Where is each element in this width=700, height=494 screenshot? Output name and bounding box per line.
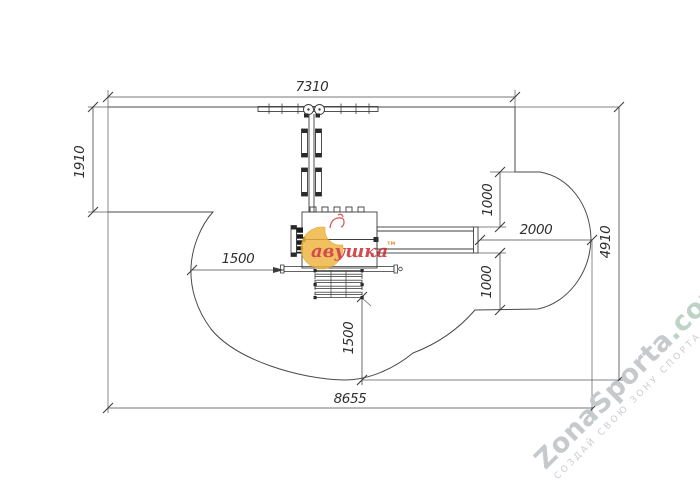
- brand-watermark: авушка тм: [294, 212, 406, 270]
- dim-right-height: 4910: [598, 226, 614, 259]
- dim-slide-clearance: 2000: [520, 222, 553, 238]
- swing-beam: [258, 104, 378, 118]
- dim-left-height: 1910: [72, 146, 88, 179]
- dim-right-lower: 1000: [479, 266, 495, 299]
- brand-trademark: тм: [387, 240, 395, 247]
- access-ladder: [314, 269, 364, 299]
- dimension-arrowhead: [273, 267, 284, 273]
- dim-left-clearance: 1500: [222, 251, 255, 267]
- swing-posts: [302, 114, 322, 212]
- brand-name-text: авушка: [311, 241, 388, 262]
- brand-mascot-icon: [330, 214, 344, 228]
- technical-drawing-canvas: 7310 1910 1500 2000 1000 1000 4910 1500 …: [0, 0, 700, 494]
- dim-right-upper: 1000: [480, 184, 496, 217]
- dim-bottom-clearance: 1500: [341, 322, 357, 355]
- dim-bottom-width: 8655: [334, 391, 367, 407]
- dim-top-width: 7310: [296, 79, 329, 95]
